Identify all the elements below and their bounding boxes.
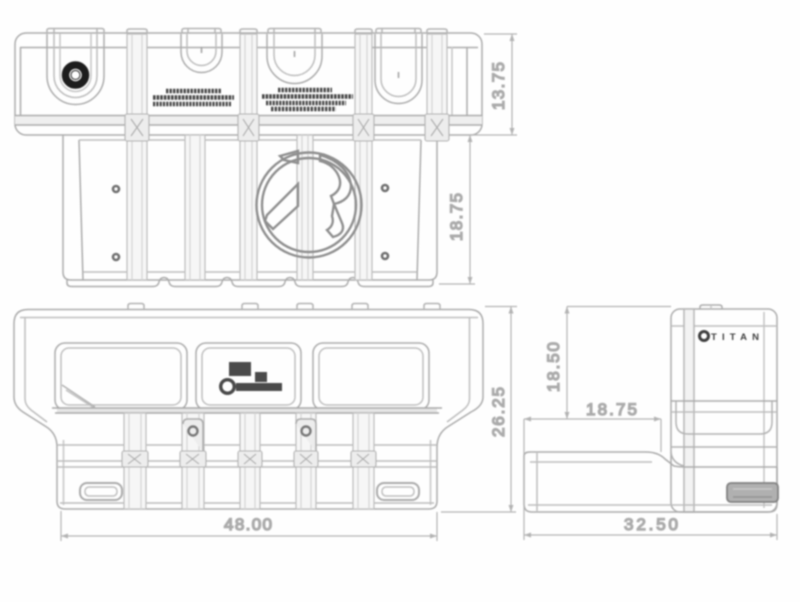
svg-text:48.00: 48.00 bbox=[224, 515, 272, 534]
svg-text:26.25: 26.25 bbox=[489, 387, 508, 437]
svg-text:TITAN: TITAN bbox=[711, 332, 759, 343]
svg-text:13.75: 13.75 bbox=[489, 62, 508, 110]
svg-text:32.50: 32.50 bbox=[624, 515, 678, 534]
svg-text:18.50: 18.50 bbox=[544, 342, 563, 392]
svg-text:18.75: 18.75 bbox=[447, 193, 466, 241]
svg-text:18.75: 18.75 bbox=[586, 400, 637, 419]
